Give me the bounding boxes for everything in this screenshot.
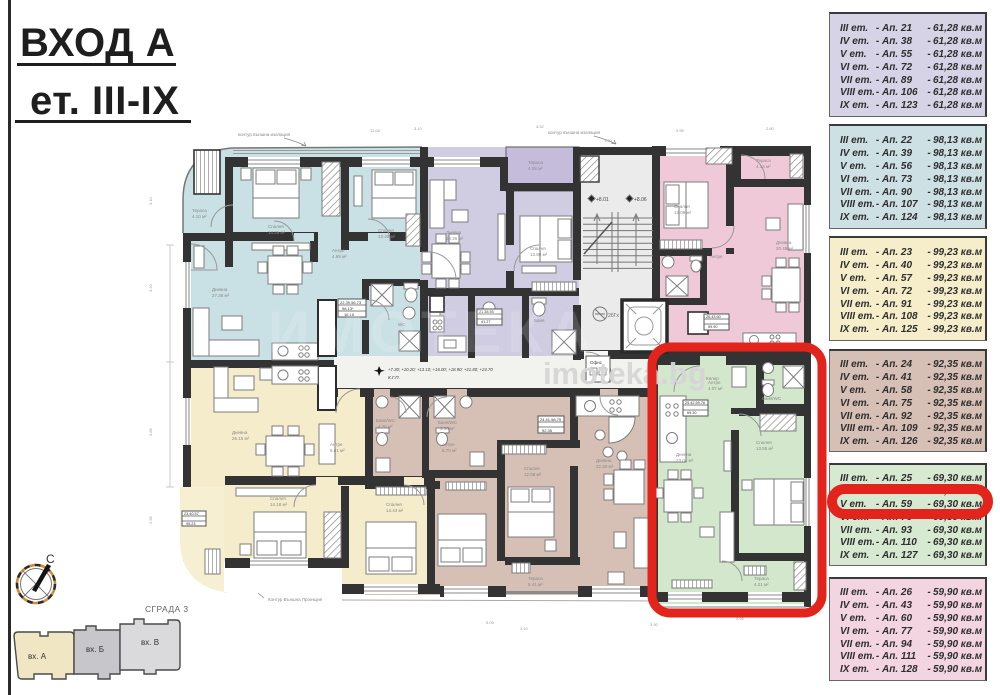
svg-text:Антре: Антре — [332, 248, 345, 253]
svg-text:2бГх: 2бГх — [608, 313, 619, 319]
svg-text:Спалня: Спалня — [756, 440, 772, 445]
svg-text:3.10: 3.10 — [414, 126, 423, 131]
svg-text:Спалня: Спалня — [268, 224, 284, 229]
svg-text:вх. Б: вх. Б — [86, 645, 104, 654]
svg-text:вх. А: вх. А — [28, 652, 47, 661]
svg-text:Килер: Килер — [706, 376, 719, 381]
svg-text:+8.01: +8.01 — [596, 197, 609, 203]
svg-text:Спалня: Спалня — [270, 496, 286, 501]
svg-text:Дневна: Дневна — [776, 240, 792, 245]
svg-text:59.90: 59.90 — [708, 325, 718, 329]
svg-text:12.06 м²: 12.06 м² — [524, 472, 542, 477]
svg-text:4.20: 4.20 — [148, 283, 153, 292]
svg-text:24.41.58.75: 24.41.58.75 — [540, 417, 562, 422]
svg-text:4.26 м²: 4.26 м² — [378, 424, 393, 429]
svg-text:3.30: 3.30 — [650, 622, 659, 627]
svg-text:4.21 м²: 4.21 м² — [754, 582, 769, 587]
svg-text:Тераса: Тераса — [528, 160, 543, 165]
svg-text:Антре: Антре — [442, 442, 455, 447]
svg-text:2.80: 2.80 — [766, 126, 775, 131]
svg-text:+7.30; +10.20; +13.10; +16.00;: +7.30; +10.20; +13.10; +16.00; +18.90; +… — [388, 367, 493, 372]
svg-text:+8.06: +8.06 — [634, 197, 647, 203]
svg-text:13.40 м²: 13.40 м² — [378, 234, 396, 239]
svg-text:92.35: 92.35 — [542, 428, 553, 433]
svg-text:Спалня: Спалня — [674, 204, 690, 209]
svg-text:Баня/WC: Баня/WC — [762, 396, 782, 401]
svg-text:Тераса: Тераса — [756, 158, 771, 163]
svg-text:Спалня: Спалня — [530, 246, 546, 251]
svg-text:5.05: 5.05 — [486, 620, 495, 625]
svg-text:4.14 м²: 4.14 м² — [756, 164, 771, 169]
svg-text:C: C — [46, 552, 55, 566]
svg-text:14.18 м²: 14.18 м² — [270, 502, 288, 507]
svg-text:25.42.59.76: 25.42.59.76 — [685, 401, 705, 405]
svg-text:5.41 м²: 5.41 м² — [528, 582, 543, 587]
svg-text:Баня/WC: Баня/WC — [376, 418, 396, 423]
svg-text:20.49 м²: 20.49 м² — [776, 246, 794, 251]
svg-text:26.43.60: 26.43.60 — [706, 315, 721, 319]
svg-text:СГРАДА 3: СГРАДА 3 — [145, 604, 189, 614]
svg-text:Контур Външна Проекция: Контур Външна Проекция — [268, 597, 323, 602]
svg-text:Дневна: Дневна — [676, 452, 692, 457]
svg-text:13.55 м²: 13.55 м² — [756, 446, 774, 451]
svg-text:3.10: 3.10 — [148, 196, 153, 205]
svg-text:4.69 м²: 4.69 м² — [332, 254, 347, 259]
svg-text:3.85: 3.85 — [148, 427, 153, 436]
svg-text:Антре: Антре — [710, 254, 723, 259]
svg-text:4.08 м²: 4.08 м² — [528, 166, 543, 171]
svg-text:2.10: 2.10 — [520, 626, 529, 631]
svg-text:3.95: 3.95 — [676, 128, 685, 133]
svg-text:6.70 м²: 6.70 м² — [442, 448, 457, 453]
svg-text:4.52: 4.52 — [536, 124, 545, 129]
svg-text:Дневна: Дневна — [446, 230, 462, 235]
svg-text:26.15 м²: 26.15 м² — [232, 436, 250, 441]
svg-text:Баня/WC: Баня/WC — [438, 420, 458, 425]
svg-text:23.04 м²: 23.04 м² — [676, 458, 694, 463]
svg-text:Дневна: Дневна — [212, 287, 228, 292]
svg-text:Антре: Антре — [330, 442, 343, 447]
svg-text:3.56 м²: 3.56 м² — [440, 426, 455, 431]
svg-text:12.06: 12.06 — [370, 128, 381, 133]
svg-text:Спалня: Спалня — [524, 466, 540, 471]
svg-text:6.61 м²: 6.61 м² — [330, 448, 345, 453]
svg-text:Тераса: Тераса — [528, 576, 543, 581]
svg-text:К.Г.П.: К.Г.П. — [388, 375, 400, 380]
svg-text:14.26 м²: 14.26 м² — [268, 230, 286, 235]
svg-text:Дневна: Дневна — [232, 430, 248, 435]
svg-text:14.43 м²: 14.43 м² — [386, 508, 404, 513]
svg-text:1.90: 1.90 — [604, 138, 613, 143]
svg-text:69.30: 69.30 — [687, 411, 697, 415]
svg-text:Тераса: Тераса — [192, 208, 207, 213]
svg-text:2.95: 2.95 — [148, 515, 153, 524]
svg-text:контур външна изолация: контур външна изолация — [548, 130, 601, 135]
svg-text:Спалня: Спалня — [378, 228, 394, 233]
svg-text:22.26 м²: 22.26 м² — [446, 236, 464, 241]
svg-text:13.80 м²: 13.80 м² — [530, 252, 548, 257]
svg-text:imoteka.bg: imoteka.bg — [543, 356, 707, 391]
svg-text:Спалня: Спалня — [386, 502, 402, 507]
svg-text:99.23: 99.23 — [186, 522, 196, 526]
svg-text:13.09 м²: 13.09 м² — [674, 210, 692, 215]
svg-text:Тераса: Тераса — [754, 576, 769, 581]
svg-text:контур външна изолация: контур външна изолация — [238, 132, 291, 137]
svg-text:23.40.57: 23.40.57 — [184, 512, 199, 516]
svg-text:Дневна: Дневна — [596, 458, 612, 463]
svg-text:22.40 м²: 22.40 м² — [596, 464, 614, 469]
svg-text:4.10 м²: 4.10 м² — [192, 214, 207, 219]
svg-text:4.07 м²: 4.07 м² — [708, 386, 723, 391]
svg-text:вх. В: вх. В — [141, 638, 159, 647]
svg-text:27.36 м²: 27.36 м² — [212, 293, 230, 298]
